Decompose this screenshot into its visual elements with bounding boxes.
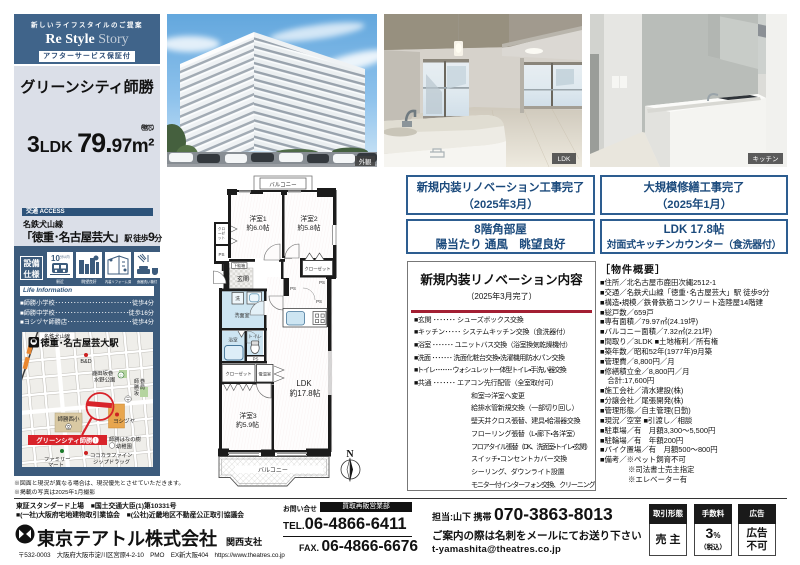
svg-text:下駄箱: 下駄箱 <box>233 262 245 268</box>
svg-text:局: 局 <box>140 385 145 391</box>
svg-text:ーゼ: ーゼ <box>218 231 226 236</box>
svg-text:グリーンシティ師勝❶: グリーンシティ師勝❶ <box>36 436 99 445</box>
svg-text:徳重･名古屋芸大駅: 徳重･名古屋芸大駅 <box>40 337 120 348</box>
svg-text:〒: 〒 <box>125 398 130 404</box>
svg-text:クローゼット: クローゼット <box>304 266 330 273</box>
svg-text:水野公園: 水野公園 <box>94 376 115 384</box>
svg-text:洋室2: 洋室2 <box>300 214 318 223</box>
svg-text:鹿田坂巻: 鹿田坂巻 <box>92 369 114 377</box>
svg-text:洗: 洗 <box>235 295 240 302</box>
svg-text:バルコニー: バルコニー <box>258 467 288 474</box>
svg-text:PS: PS <box>253 357 259 362</box>
svg-text:師勝西小: 師勝西小 <box>57 415 80 423</box>
svg-text:浴室: 浴室 <box>228 337 238 344</box>
svg-text:洋室3: 洋室3 <box>239 411 257 420</box>
svg-text:幼稚園: 幼稚園 <box>116 442 132 450</box>
svg-text:LDK: LDK <box>558 156 571 163</box>
svg-text:約6.0帖: 約6.0帖 <box>246 223 269 232</box>
svg-text:PS: PS <box>290 286 296 291</box>
svg-text:キッチン: キッチン <box>753 155 779 163</box>
svg-text:巻: 巻 <box>140 378 145 385</box>
svg-text:文: 文 <box>66 424 71 431</box>
svg-text:PS: PS <box>316 299 322 304</box>
svg-text:クロ: クロ <box>218 226 226 231</box>
svg-text:バルコニー: バルコニー <box>269 182 296 189</box>
svg-text:トイレ: トイレ <box>248 334 262 339</box>
svg-text:約17.8帖: 約17.8帖 <box>290 388 321 398</box>
svg-text:玄関: 玄関 <box>237 275 249 283</box>
svg-text:⚐: ⚐ <box>119 373 123 378</box>
svg-text:食器洗い機付: 食器洗い機付 <box>137 279 158 284</box>
svg-text:勝: 勝 <box>134 384 139 391</box>
svg-text:PS: PS <box>319 280 325 285</box>
svg-text:電温室: 電温室 <box>259 371 272 378</box>
svg-text:坂: 坂 <box>134 390 139 397</box>
svg-text:内装リフォーム済: 内装リフォーム済 <box>105 279 131 284</box>
svg-text:B&D: B&D <box>80 359 91 365</box>
svg-text:洗面室: 洗面室 <box>234 312 249 319</box>
svg-text:ココカラファイン: ココカラファイン <box>90 452 132 459</box>
svg-text:マート: マート <box>48 462 64 468</box>
svg-text:約5.9帖: 約5.9帖 <box>236 420 259 429</box>
svg-text:クローゼット: クローゼット <box>225 371 251 378</box>
svg-text:分以内: 分以内 <box>60 254 70 259</box>
svg-text:師勝はなの樹: 師勝はなの樹 <box>109 435 141 443</box>
svg-text:LDK: LDK <box>296 379 312 388</box>
svg-text:ジップドラッグ: ジップドラッグ <box>93 458 131 466</box>
svg-text:眺望良好: 眺望良好 <box>81 279 96 284</box>
svg-text:N: N <box>346 449 354 460</box>
svg-text:駅近: 駅近 <box>56 279 64 284</box>
svg-text:ット: ット <box>218 236 226 240</box>
svg-text:師: 師 <box>134 378 139 385</box>
svg-text:ヨシヅヤ: ヨシヅヤ <box>113 418 136 425</box>
svg-text:PS: PS <box>218 252 224 257</box>
svg-text:約5.8帖: 約5.8帖 <box>297 223 320 232</box>
svg-text:洋室1: 洋室1 <box>249 214 267 223</box>
svg-text:外観: 外観 <box>359 157 372 166</box>
